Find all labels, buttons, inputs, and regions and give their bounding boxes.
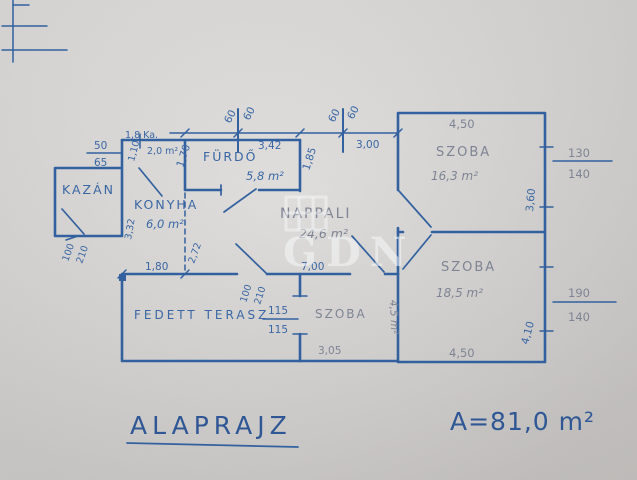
dim-strip-width: 3,00	[356, 139, 379, 151]
door-szoba-felso	[399, 191, 431, 227]
room-szoba-kis-area: 4,5 m²	[387, 300, 400, 336]
dim-szoba-felso-width: 4,50	[449, 117, 475, 131]
room-terasz-label: FEDETT TERASZ	[134, 308, 269, 322]
watermark-text: GDN	[283, 229, 415, 276]
dim-szoba-kis-width: 3,05	[318, 345, 341, 357]
room-konyha-label: KONYHA	[134, 197, 198, 212]
room-kamra-area: 2,0 m²	[147, 146, 178, 157]
dim-terasz-window-top: 115	[268, 305, 288, 317]
dim-window-kazan-top: 50	[94, 140, 107, 152]
dimension-linework	[66, 129, 616, 447]
floorplan-photo: KAZÁN 1,8 Ka. 2,0 m² FÜRDŐ 5,8 m² KONYHA…	[0, 0, 637, 480]
dim-hall-height: 2,72	[186, 241, 204, 265]
dim-chimney2-right: 60	[345, 104, 362, 121]
room-szoba-also-label: SZOBA	[441, 260, 496, 275]
wall-szoba-felso	[398, 113, 545, 274]
dim-kazan-door-h: 210	[74, 244, 91, 265]
dim-furdo-width: 3,42	[258, 140, 281, 152]
door-terasz	[236, 244, 266, 273]
dim-chimney1-left: 60	[222, 108, 239, 125]
dim-szoba-also-width: 4,50	[449, 346, 475, 360]
dim-window-also-w: 190	[568, 286, 590, 300]
dim-chimney1-right: 60	[241, 105, 258, 122]
dim-chimney2-left: 60	[326, 107, 343, 124]
plan-title: ALAPRAJZ	[130, 411, 292, 440]
door-konyha	[139, 168, 162, 196]
room-furdo-area: 5,8 m²	[246, 169, 284, 183]
dim-szoba-felso-height: 3,60	[524, 188, 538, 212]
dim-konyha-height: 3,32	[123, 218, 138, 241]
dim-window-felso-w: 130	[568, 146, 590, 160]
door-furdo	[221, 185, 256, 212]
room-szoba-kis-label: SZOBA	[315, 307, 367, 321]
dim-terasz-door-h: 210	[252, 285, 268, 306]
room-konyha-area: 6,0 m²	[146, 217, 184, 231]
room-furdo-label: FÜRDŐ	[203, 148, 258, 164]
room-kazan-label: KAZÁN	[62, 182, 115, 197]
dim-kamra-width: 1,10	[126, 139, 142, 162]
footer: ALAPRAJZ A=81,0 m²	[130, 407, 595, 440]
total-area: A=81,0 m²	[450, 407, 595, 436]
door-kazan	[62, 209, 84, 234]
dim-window-felso-h: 140	[568, 167, 590, 181]
dim-window-also-h: 140	[568, 310, 590, 324]
floorplan-drawing: KAZÁN 1,8 Ka. 2,0 m² FÜRDŐ 5,8 m² KONYHA…	[0, 0, 637, 480]
dim-window-kazan-bottom: 65	[94, 157, 107, 169]
dim-terasz-window-bottom: 115	[268, 324, 288, 336]
room-szoba-felso-label: SZOBA	[436, 145, 491, 160]
room-kamra-label: 1,8 Ka.	[125, 130, 158, 141]
dim-konyha-width: 1,80	[145, 261, 168, 273]
room-szoba-also-area: 18,5 m²	[436, 286, 483, 300]
dim-szoba-also-height: 4,10	[519, 320, 537, 346]
room-szoba-felso-area: 16,3 m²	[431, 169, 478, 183]
page-edge-marks	[2, 0, 67, 62]
wall-furdo	[185, 140, 300, 191]
dim-furdo-right-h: 1,85	[300, 146, 319, 172]
